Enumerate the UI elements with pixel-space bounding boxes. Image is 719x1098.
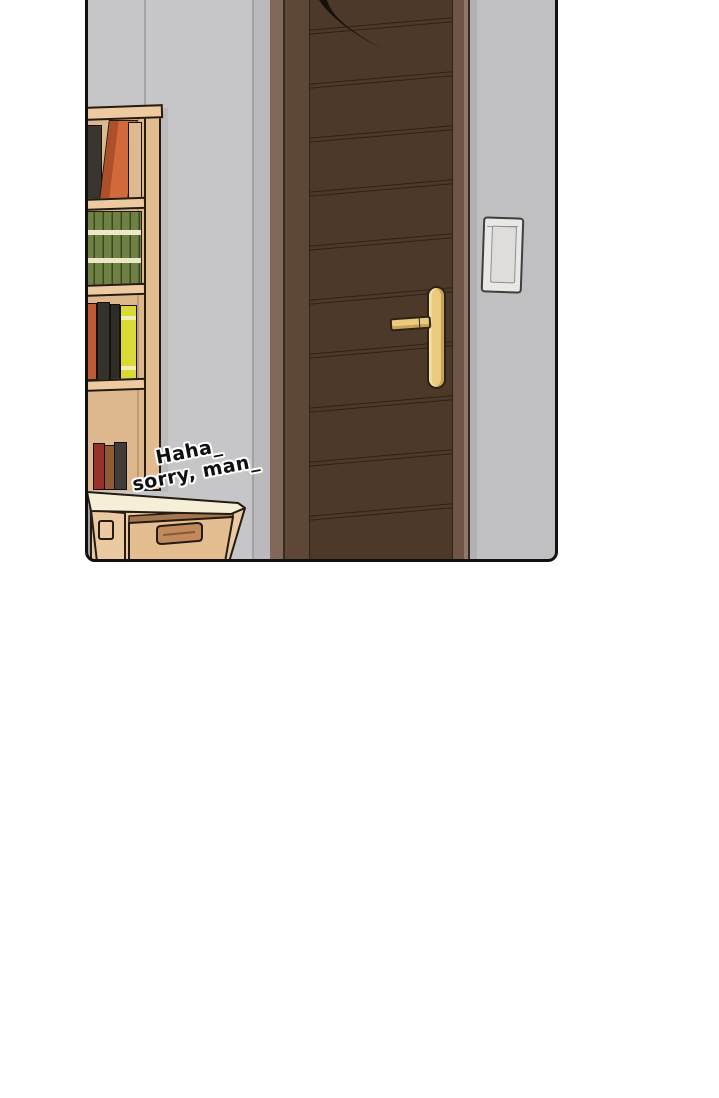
- panel-border: [85, 0, 558, 562]
- comic-panel: Haha_ sorry, man_: [85, 0, 558, 562]
- comic-page: Haha_ sorry, man_: [0, 0, 719, 1098]
